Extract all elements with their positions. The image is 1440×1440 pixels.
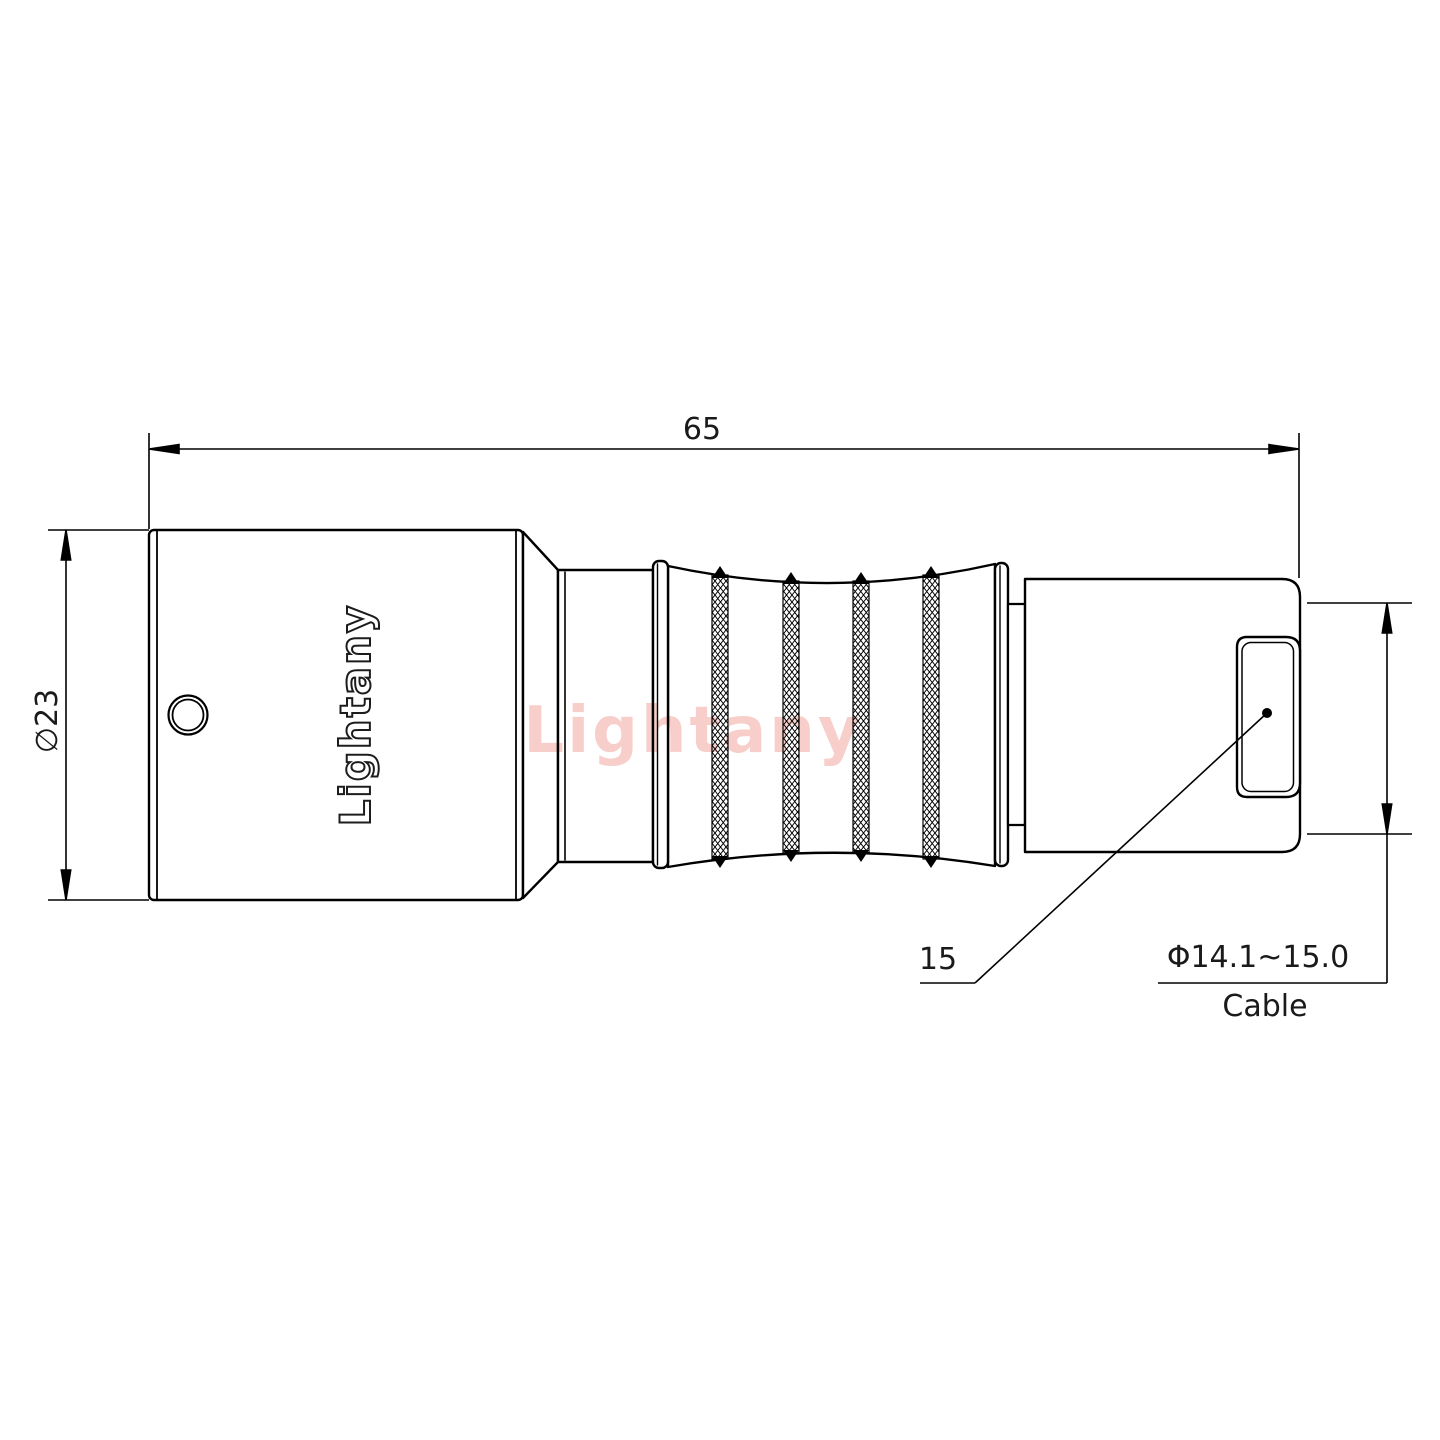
leader-dot xyxy=(1262,708,1272,718)
arrowhead-down xyxy=(61,870,70,900)
leader-15-text: 15 xyxy=(919,945,957,975)
arrowhead-down xyxy=(1382,804,1391,834)
brand-watermark: Lightany xyxy=(523,699,862,763)
release-hole-inner xyxy=(173,700,204,731)
brand-engraving: Lightany xyxy=(335,604,377,827)
arrowhead-right xyxy=(1269,445,1299,454)
body-diameter-dim-text: ∅23 xyxy=(33,689,63,753)
cable-diameter-range-text: Φ14.1~15.0 xyxy=(1167,943,1349,973)
technical-drawing-canvas: 65 ∅23 15 Φ14.1~15.0 Cable Lightany Ligh… xyxy=(0,0,1440,1440)
arrowhead-up xyxy=(1382,603,1391,633)
overall-length-dim-text: 65 xyxy=(683,415,721,445)
neck-section xyxy=(1008,604,1025,825)
grip-right-cap xyxy=(995,563,1008,866)
knurl-band xyxy=(923,566,939,868)
arrowhead-left xyxy=(149,445,179,454)
arrowhead-up xyxy=(61,530,70,560)
cable-word-text: Cable xyxy=(1222,992,1307,1022)
